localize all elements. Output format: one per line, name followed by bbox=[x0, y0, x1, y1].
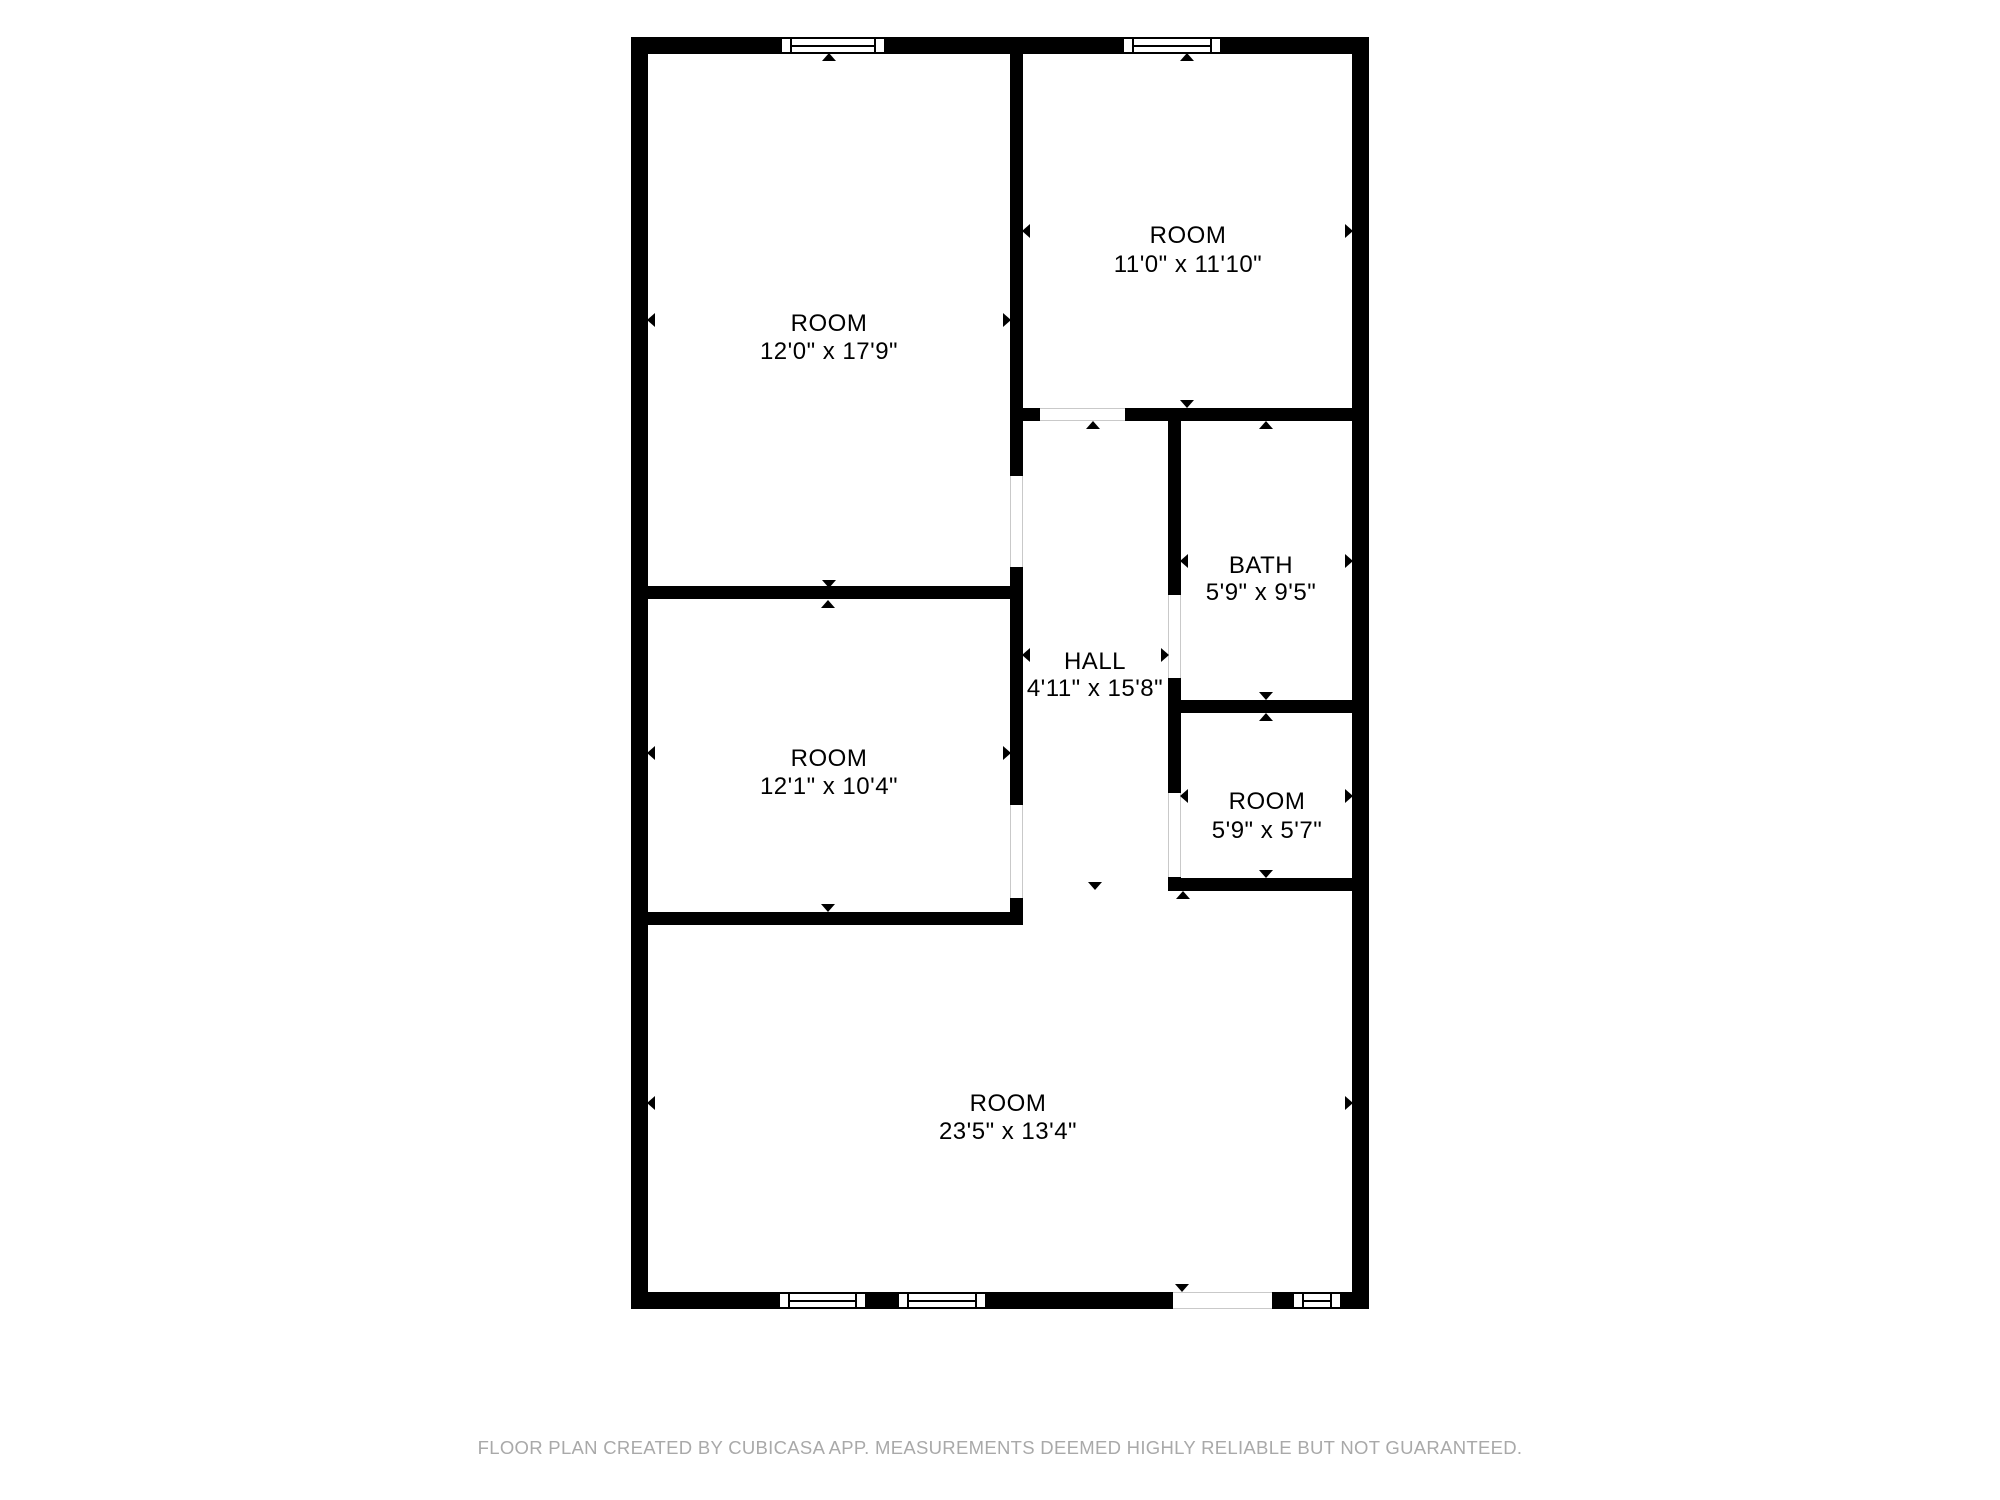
bath-smallroom-divider bbox=[1181, 700, 1352, 713]
door-mid-left-room bbox=[1010, 805, 1023, 898]
window-top-right bbox=[1122, 37, 1222, 54]
room-top-left-label: ROOM bbox=[791, 310, 868, 338]
dimension-arrow-down bbox=[1088, 882, 1102, 890]
footer-disclaimer: FLOOR PLAN CREATED BY CUBICASA APP. MEAS… bbox=[478, 1437, 1523, 1459]
dimension-arrow-down bbox=[1259, 692, 1273, 700]
window-bottom-right bbox=[1292, 1292, 1342, 1309]
divider-center-upper bbox=[1010, 54, 1023, 476]
dimension-arrow-up bbox=[1086, 421, 1100, 429]
window-frame-line bbox=[1302, 1294, 1304, 1307]
window-frame-line bbox=[975, 1294, 977, 1307]
hall-label: HALL bbox=[1064, 648, 1126, 676]
door-top-right-room bbox=[1040, 408, 1125, 421]
window-frame-line bbox=[788, 1294, 790, 1307]
smallroom-bottom bbox=[1168, 878, 1352, 891]
dimension-arrow-down bbox=[1259, 870, 1273, 878]
dimension-arrow-right bbox=[1345, 554, 1353, 568]
room-mid-left-dimensions: 12'1" x 10'4" bbox=[760, 773, 898, 801]
dimension-arrow-left bbox=[1022, 648, 1030, 662]
dimension-arrow-down bbox=[1175, 1284, 1189, 1292]
room-top-right-label: ROOM bbox=[1150, 222, 1227, 250]
dimension-arrow-up bbox=[1176, 891, 1190, 899]
midleft-bottom bbox=[648, 912, 1023, 925]
hall-right-middle bbox=[1168, 678, 1181, 793]
dimension-arrow-right bbox=[1345, 224, 1353, 238]
window-bottom-2 bbox=[897, 1292, 987, 1309]
exterior-right bbox=[1352, 37, 1369, 1309]
window-top-left bbox=[780, 37, 886, 54]
dimension-arrow-down bbox=[821, 904, 835, 912]
dimension-arrow-up bbox=[821, 600, 835, 608]
dimension-arrow-right bbox=[1345, 789, 1353, 803]
room-mid-left-label: ROOM bbox=[791, 745, 868, 773]
door-small-room bbox=[1168, 793, 1181, 877]
room-top-right-dimensions: 11'0" x 11'10" bbox=[1114, 251, 1262, 279]
dimension-arrow-left bbox=[647, 746, 655, 760]
dimension-arrow-left bbox=[1180, 789, 1188, 803]
dimension-arrow-down bbox=[822, 580, 836, 588]
room-bottom-dimensions: 23'5" x 13'4" bbox=[939, 1118, 1077, 1146]
dimension-arrow-up bbox=[1180, 53, 1194, 61]
room-top-left-dimensions: 12'0" x 17'9" bbox=[760, 338, 898, 366]
dimension-arrow-right bbox=[1003, 746, 1011, 760]
room-bottom-label: ROOM bbox=[970, 1090, 1047, 1118]
door-top-left-room bbox=[1010, 476, 1023, 567]
divider-center-middle bbox=[1010, 567, 1023, 805]
bath-dimensions: 5'9" x 9'5" bbox=[1206, 579, 1316, 607]
dimension-arrow-right bbox=[1345, 1096, 1353, 1110]
room-small-dimensions: 5'9" x 5'7" bbox=[1212, 817, 1322, 845]
exterior-top bbox=[631, 37, 1369, 54]
window-frame-line bbox=[791, 45, 875, 47]
hall-right-upper bbox=[1168, 421, 1181, 595]
hall-dimensions: 4'11" x 15'8" bbox=[1027, 675, 1163, 703]
dimension-arrow-left bbox=[647, 1096, 655, 1110]
window-frame-line bbox=[1330, 1294, 1332, 1307]
topright-bottom-stub bbox=[1023, 408, 1040, 421]
bath-label: BATH bbox=[1229, 552, 1293, 580]
dimension-arrow-up bbox=[1259, 713, 1273, 721]
window-frame-line bbox=[1133, 45, 1211, 47]
window-frame-line bbox=[874, 39, 876, 52]
dimension-arrow-left bbox=[1180, 554, 1188, 568]
room-small-label: ROOM bbox=[1229, 788, 1306, 816]
dimension-arrow-up bbox=[822, 53, 836, 61]
exterior-left bbox=[631, 37, 648, 1309]
dimension-arrow-left bbox=[647, 313, 655, 327]
window-frame-line bbox=[1132, 39, 1134, 52]
dimension-arrow-right bbox=[1161, 648, 1169, 662]
window-frame-line bbox=[907, 1294, 909, 1307]
window-frame-line bbox=[1210, 39, 1212, 52]
dimension-arrow-right bbox=[1003, 313, 1011, 327]
dimension-arrow-up bbox=[1259, 421, 1273, 429]
window-frame-line bbox=[855, 1294, 857, 1307]
dimension-arrow-down bbox=[1180, 400, 1194, 408]
window-bottom-1 bbox=[778, 1292, 867, 1309]
window-frame-line bbox=[908, 1300, 976, 1302]
entry-opening-bottom bbox=[1173, 1292, 1272, 1309]
window-frame-line bbox=[1303, 1300, 1331, 1302]
dimension-arrow-left bbox=[1022, 224, 1030, 238]
door-bath bbox=[1168, 595, 1181, 678]
floor-plan: ROOM12'0" x 17'9"ROOM11'0" x 11'10"BATH5… bbox=[0, 0, 2000, 1500]
topright-bottom-main bbox=[1125, 408, 1352, 421]
window-frame-line bbox=[790, 39, 792, 52]
window-frame-line bbox=[789, 1300, 856, 1302]
